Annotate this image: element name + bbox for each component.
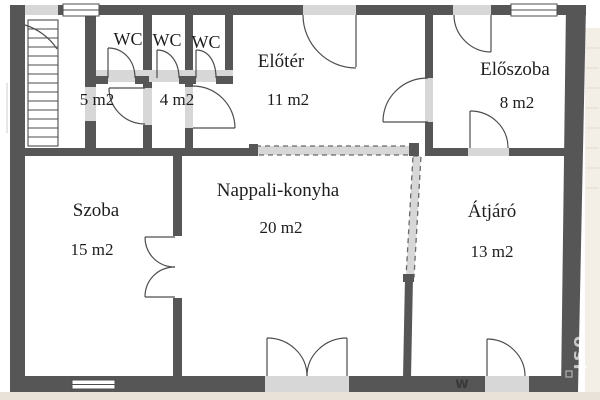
door-anteroom-5m2 <box>109 88 145 124</box>
dashed-wall-horizontal <box>256 146 413 155</box>
room-label-wc1: WC <box>114 29 143 49</box>
room-area-nappali: 20 m2 <box>260 218 303 237</box>
stairs-top-opening <box>25 5 58 15</box>
door-atjaro-exit <box>487 339 525 376</box>
room-label-eloter: Előtér <box>258 51 305 72</box>
room-area-atjaro: 13 m2 <box>471 242 514 261</box>
eloter-entry-threshold <box>303 5 356 15</box>
room-area-eloszoba: 8 m2 <box>500 93 534 112</box>
watermark-mark: w <box>455 374 469 392</box>
room-label-wc3: WC <box>192 32 221 52</box>
bottom-margin <box>0 392 600 400</box>
staircase <box>25 20 58 146</box>
dashed-partition <box>249 143 421 378</box>
door-anteroom-4m2 <box>193 86 235 128</box>
room-label-eloszoba: Előszoba <box>480 59 550 80</box>
window-top-right <box>511 4 557 16</box>
room-area-eloter: 11 m2 <box>267 90 309 109</box>
floor-plan-image: WC WC WC 5 m2 4 m2 Előtér 11 m2 Előszoba… <box>0 0 600 400</box>
terrace-door-threshold <box>265 376 349 392</box>
room-label-atjaro: Átjáró <box>468 200 517 222</box>
room-area-wc1: 5 m2 <box>80 90 114 109</box>
double-door-terrace <box>267 338 347 376</box>
door-eloszoba-atjaro <box>470 111 508 148</box>
partition-solid-segment <box>403 277 413 378</box>
room-label-wc2: WC <box>153 30 182 50</box>
room-area-szoba: 15 m2 <box>71 240 114 259</box>
room-label-szoba: Szoba <box>73 200 120 221</box>
door-eloter-entry <box>303 15 356 68</box>
room-label-nappali: Nappali-konyha <box>217 180 340 201</box>
window-bottom <box>72 380 115 389</box>
right-wall <box>561 5 586 392</box>
atjaro-door-threshold <box>485 376 529 392</box>
eloszoba-entry-threshold <box>453 5 491 15</box>
door-eloter-eloszoba <box>383 78 428 122</box>
room-labels: WC WC WC 5 m2 4 m2 Előtér 11 m2 Előszoba… <box>71 29 551 261</box>
wall-stairs-wc <box>85 15 96 148</box>
door-eloszoba-entry <box>454 15 491 52</box>
wall-mid-left <box>25 148 256 156</box>
dashed-wall-diagonal <box>406 156 421 277</box>
wc-front-threshold <box>96 70 233 82</box>
watermark-text: osi <box>569 336 589 373</box>
window-top-left <box>63 4 99 16</box>
floor-plan-svg: WC WC WC 5 m2 4 m2 Előtér 11 m2 Előszoba… <box>0 0 600 400</box>
room-area-wc2: 4 m2 <box>160 90 194 109</box>
wall-wc3-eloter <box>225 15 233 77</box>
left-wall <box>10 5 25 392</box>
